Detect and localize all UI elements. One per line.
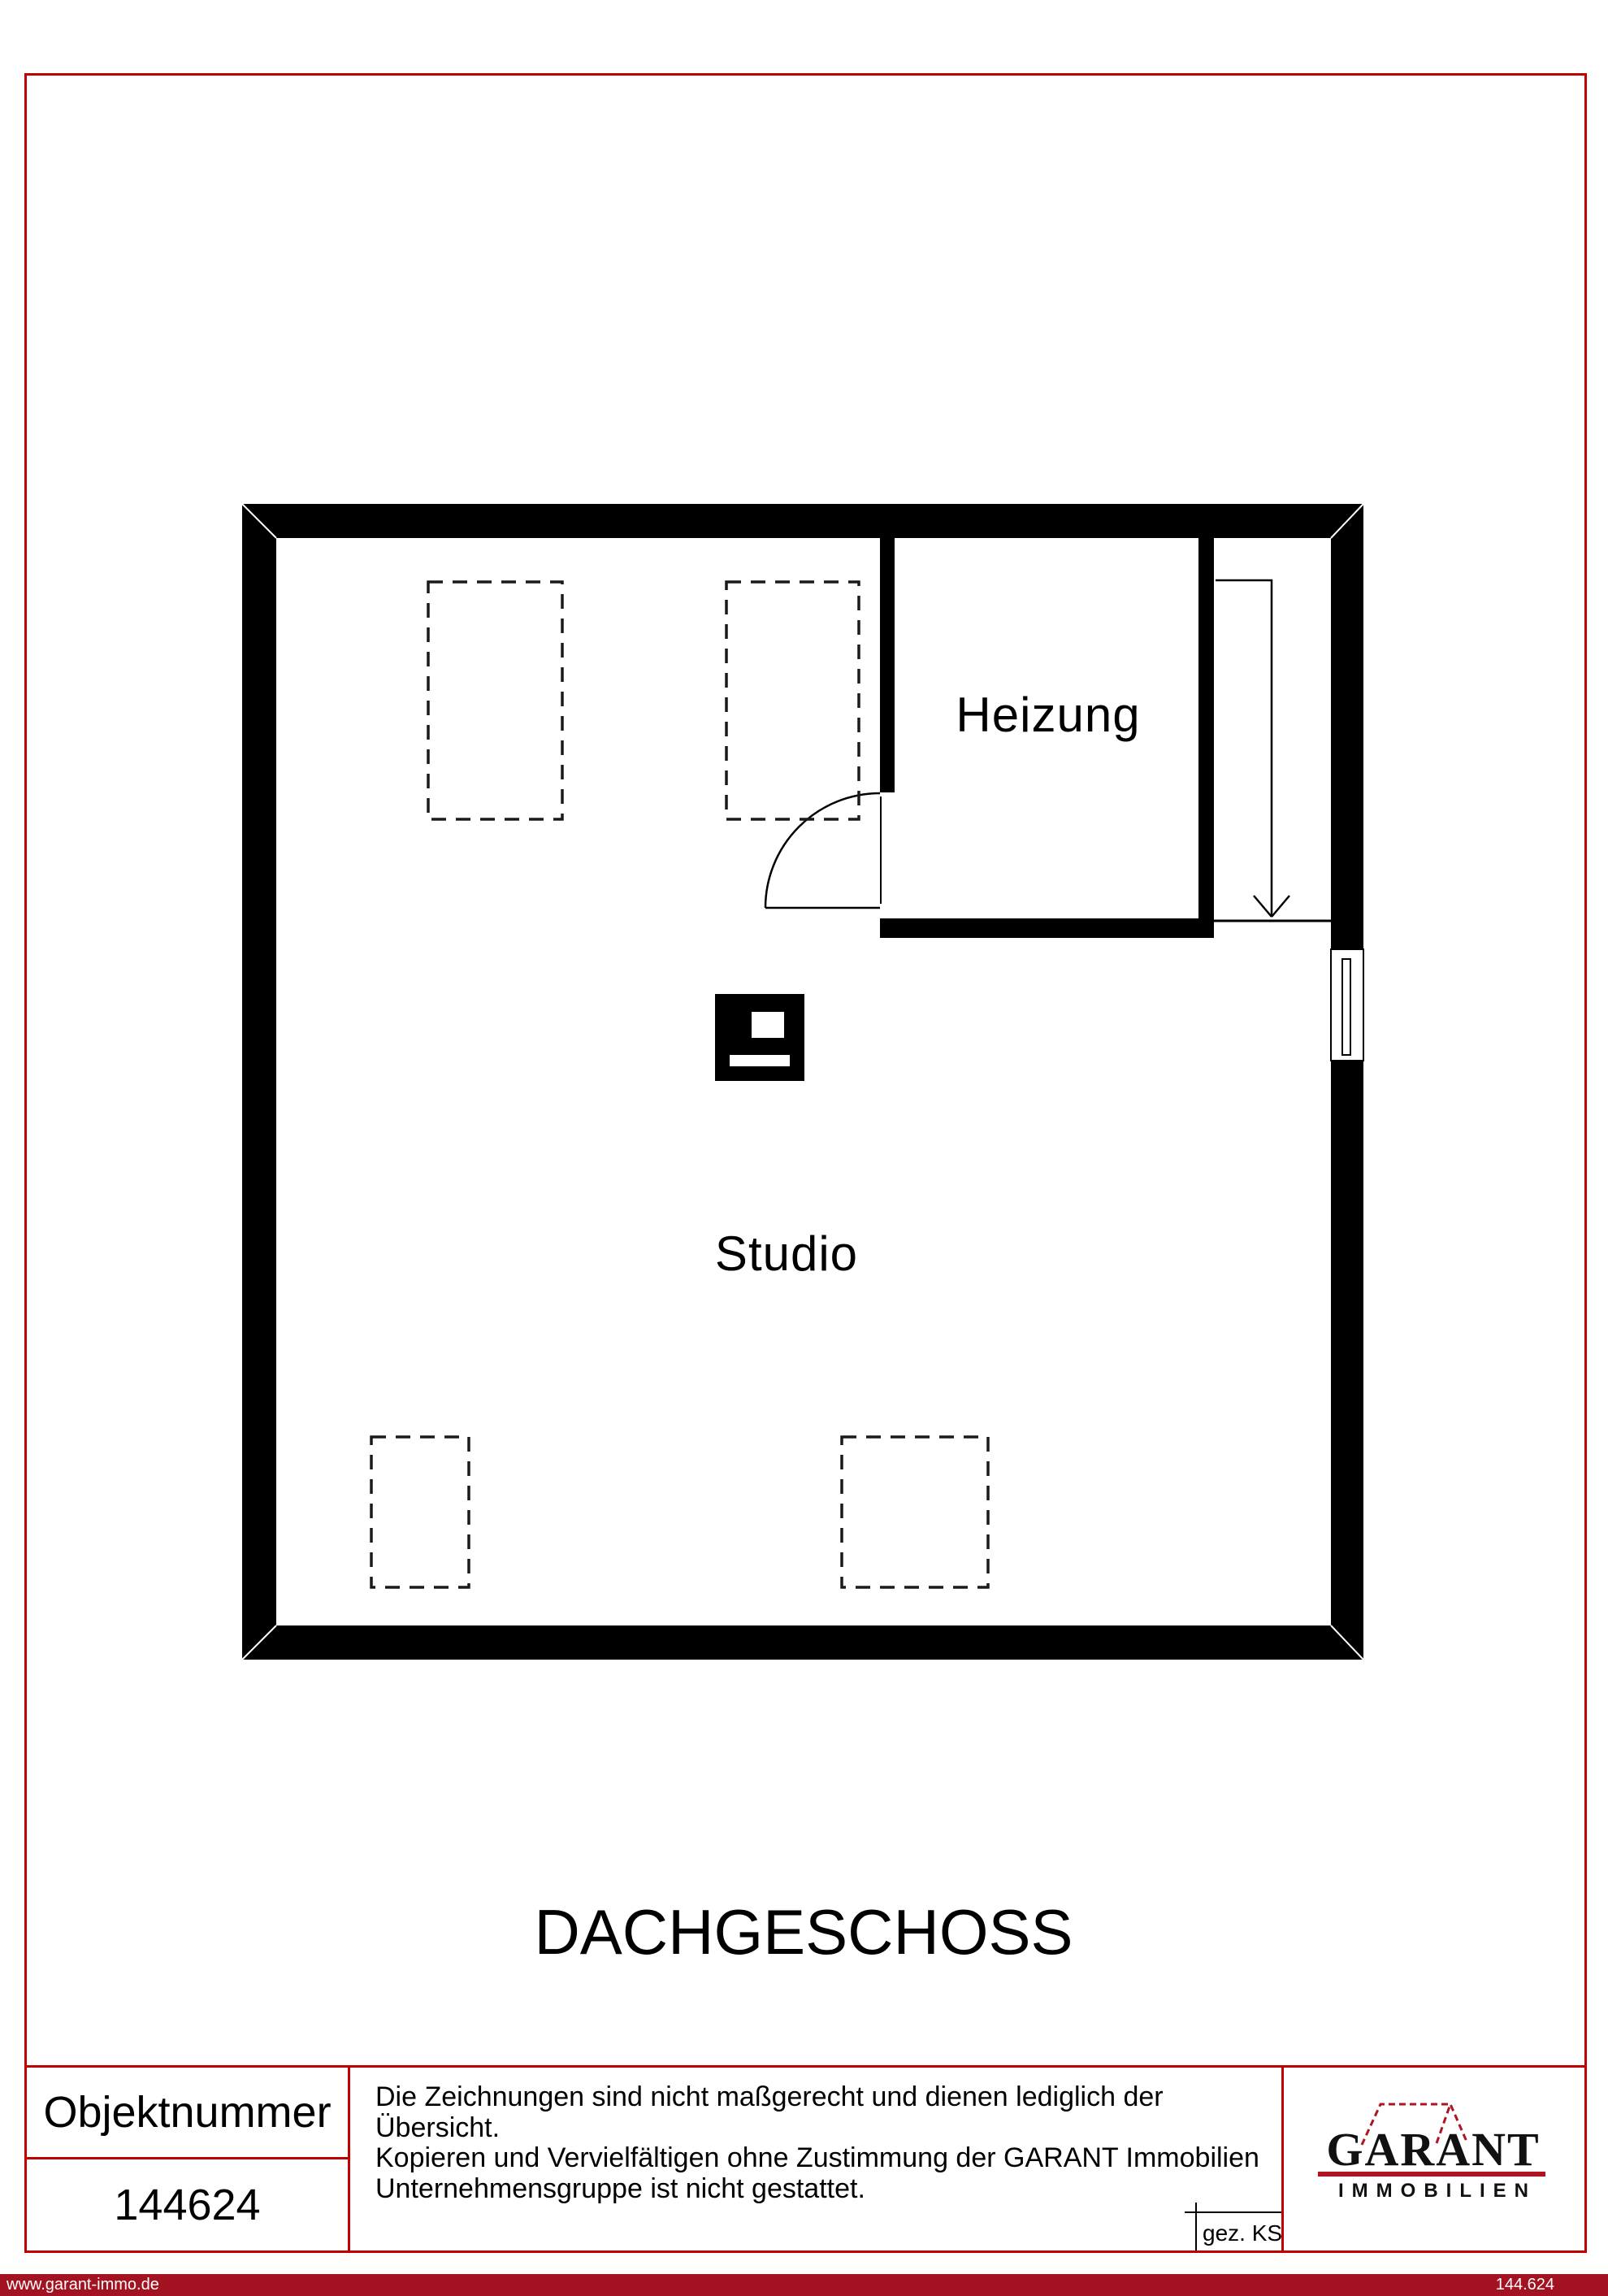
table-divider-objektnummer	[24, 2157, 350, 2159]
footer-website: www.garant-immo.de	[7, 2274, 159, 2296]
floor-plan-page: Heizung Studio DACHGESCHOSS Objektnummer…	[0, 0, 1608, 2296]
table-top-border	[24, 2065, 1584, 2068]
disclaimer-text: Die Zeichnungen sind nicht maßgerecht un…	[375, 2082, 1269, 2204]
footer-bar: www.garant-immo.de 144.624	[0, 2274, 1608, 2296]
logo-wordmark: GARANT	[1281, 2126, 1585, 2173]
disclaimer-line-2: Kopieren und Vervielfältigen ohne Zustim…	[375, 2143, 1269, 2174]
footer-reference: 144.624	[1496, 2274, 1554, 2296]
level-title: DACHGESCHOSS	[397, 1900, 1210, 1964]
room-label-heizung: Heizung	[886, 691, 1211, 740]
logo-underline	[1318, 2172, 1545, 2177]
logo-subtitle: IMMOBILIEN	[1281, 2181, 1593, 2201]
object-number-label: Objektnummer	[27, 2068, 348, 2156]
disclaimer-line-3: Unternehmensgruppe ist nicht gestattet.	[375, 2174, 1269, 2205]
room-label-studio: Studio	[624, 1230, 949, 1278]
object-number-value: 144624	[27, 2161, 348, 2249]
disclaimer-line-1: Die Zeichnungen sind nicht maßgerecht un…	[375, 2082, 1269, 2143]
drawn-by-note: gez. KS	[1203, 2220, 1280, 2246]
